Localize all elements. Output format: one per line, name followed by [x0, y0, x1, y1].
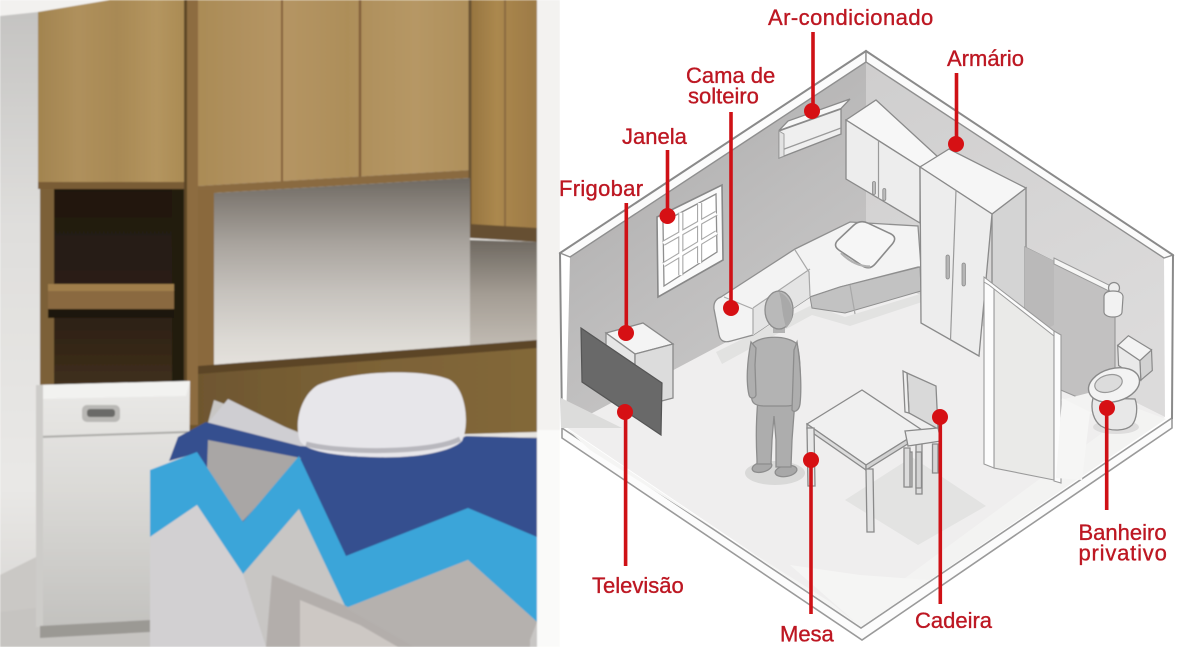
svg-text:Televisão: Televisão [592, 573, 684, 598]
svg-text:privativo: privativo [1079, 541, 1168, 566]
svg-text:Mesa: Mesa [780, 622, 835, 647]
svg-text:solteiro: solteiro [688, 84, 759, 109]
svg-text:Ar-condicionado: Ar-condicionado [768, 5, 934, 30]
svg-text:Janela: Janela [622, 124, 688, 149]
svg-text:Cadeira: Cadeira [915, 608, 993, 633]
svg-text:Frigobar: Frigobar [559, 176, 643, 201]
svg-text:Armário: Armário [947, 46, 1024, 71]
